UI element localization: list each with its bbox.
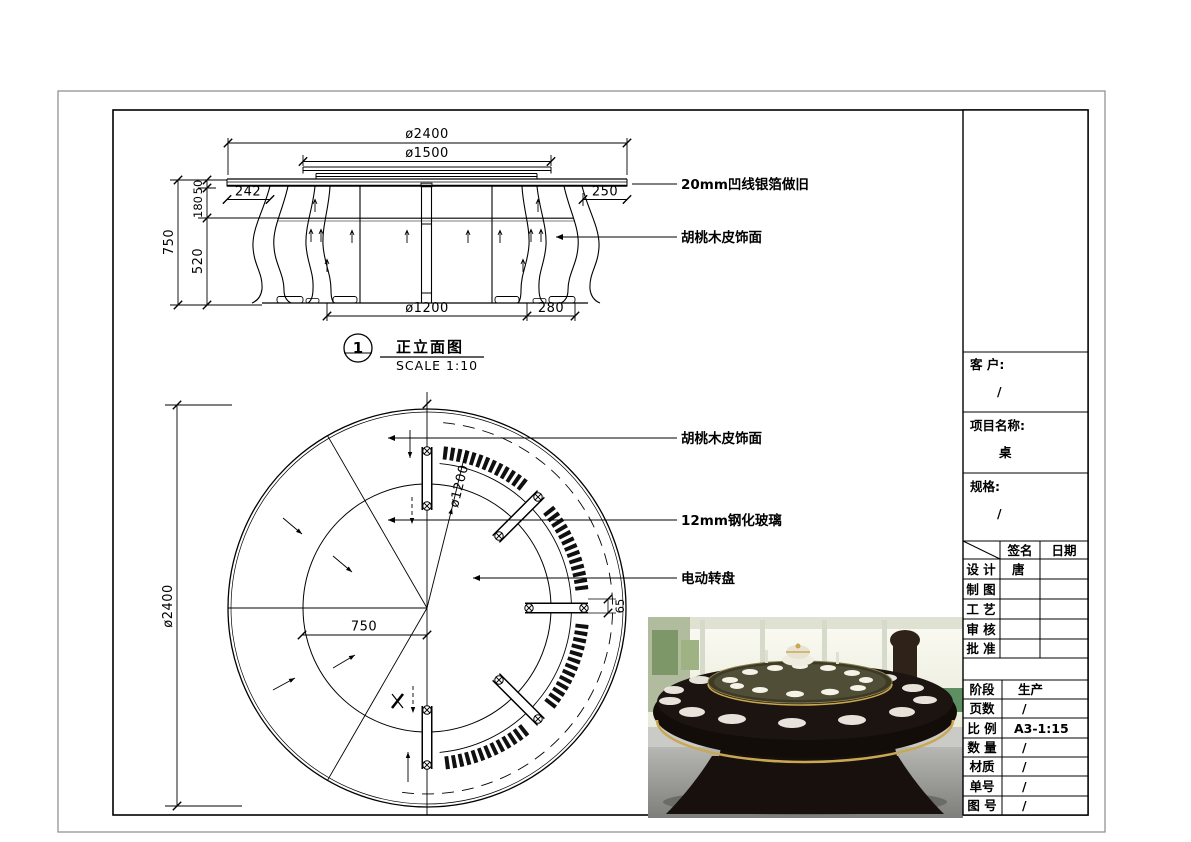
elev-dim-250-text: 250 — [592, 185, 618, 200]
elev-dim-242-text: 242 — [235, 185, 261, 200]
row-approve-label: 批 准 — [966, 641, 996, 656]
qty-label: 数 量 — [966, 740, 997, 755]
plan-radial-lines — [228, 392, 431, 815]
row-review-label: 审 核 — [966, 622, 996, 637]
drawing-no-value: / — [1022, 798, 1027, 813]
plan-dim-65 — [588, 595, 616, 617]
elev-dim-750-text: 750 — [162, 229, 177, 255]
order-label: 单号 — [969, 779, 994, 794]
pages-value: / — [1022, 701, 1027, 716]
material-label: 材质 — [968, 759, 995, 774]
plan-dim-65-text: 65 — [613, 599, 627, 614]
client-label: 客 户: — [969, 357, 1004, 372]
elevation-view: ø2400 ø1500 — [162, 127, 809, 373]
view-scale-text: SCALE 1:10 — [396, 358, 478, 373]
sign-column-header: 签名 — [1006, 543, 1032, 558]
project-label: 项目名称: — [970, 418, 1025, 433]
qty-value: / — [1022, 740, 1027, 755]
elev-label-veneer: 胡桃木皮饰面 — [681, 229, 762, 246]
client-value: / — [997, 384, 1002, 399]
elev-pedestal — [252, 186, 600, 303]
drawing-sheet: ø2400 ø1500 — [0, 0, 1191, 842]
plan-dim-2400 — [165, 401, 242, 810]
elev-view-title: 1 正立面图 SCALE 1:10 — [344, 334, 484, 373]
elev-dim-180-text: 180 — [191, 196, 205, 218]
elev-dim-1200-text: ø1200 — [405, 301, 449, 316]
title-block: 客 户: / 项目名称: 桌 规格: / 签名 日期 设 计 唐 制 图 工 艺… — [963, 110, 1088, 815]
elev-dim-280-text: 280 — [538, 301, 564, 316]
spec-value: / — [997, 506, 1002, 521]
view-number: 1 — [353, 339, 363, 357]
spec-label: 规格: — [970, 479, 1000, 494]
scale-label: 比 例 — [967, 721, 996, 736]
drawing-no-label: 图 号 — [967, 798, 996, 813]
plan-label-veneer: 胡桃木皮饰面 — [681, 430, 762, 447]
elev-grain-marks — [309, 200, 543, 273]
plan-dim-2400-text: ø2400 — [161, 584, 176, 628]
elev-turntable — [303, 167, 551, 179]
row-design-label: 设 计 — [966, 562, 996, 577]
date-column-header: 日期 — [1051, 543, 1076, 558]
elev-tabletop — [227, 179, 627, 187]
row-draft-label: 制 图 — [966, 582, 995, 597]
elev-label-edge: 20mm凹线银箔做旧 — [681, 176, 809, 193]
photo-inset — [648, 617, 963, 818]
elev-dim-50-text: 50 — [191, 180, 205, 195]
plan-label-glass: 12mm钢化玻璃 — [681, 512, 782, 529]
order-value: / — [1022, 779, 1027, 794]
material-value: / — [1022, 759, 1027, 774]
elev-dim-520-text: 520 — [191, 248, 206, 274]
cad-canvas: ø2400 ø1500 — [0, 0, 1191, 842]
plan-dim-750-text: 750 — [351, 620, 377, 635]
scale-value: A3-1:15 — [1014, 721, 1069, 736]
stage-label: 阶段 — [969, 682, 995, 697]
plan-label-turntable: 电动转盘 — [681, 570, 735, 587]
view-title-text: 正立面图 — [396, 338, 464, 356]
elev-dim-2400-text: ø2400 — [405, 127, 449, 142]
plan-grain-arrows — [273, 430, 413, 782]
row-craft-label: 工 艺 — [966, 602, 995, 617]
stage-value: 生产 — [1018, 682, 1043, 697]
plan-support-bars — [423, 447, 588, 769]
pages-label: 页数 — [969, 701, 995, 716]
row-design-sign: 唐 — [1012, 562, 1025, 577]
project-value: 桌 — [998, 445, 1012, 460]
elev-dim-1500-text: ø1500 — [405, 146, 449, 161]
